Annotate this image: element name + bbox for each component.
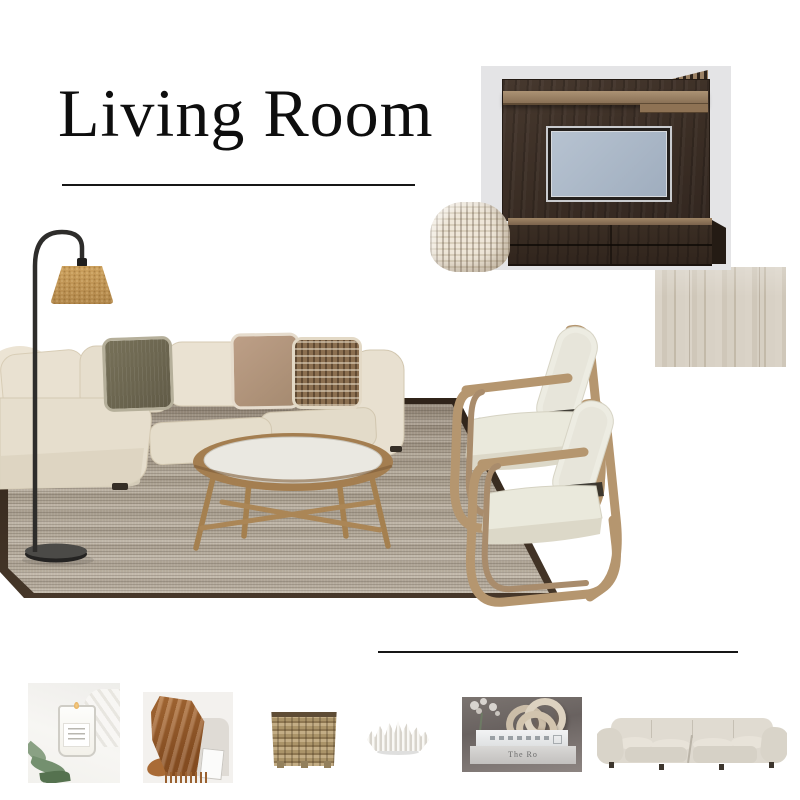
tv-base-top-strip — [508, 218, 712, 225]
basket-foot — [301, 761, 308, 768]
flower — [480, 698, 487, 705]
thumbnail-coral-bowl[interactable] — [367, 719, 429, 755]
mini-sofa-seat — [693, 746, 757, 763]
page-title[interactable]: Living Room — [58, 76, 434, 151]
candle-jar — [58, 705, 96, 757]
book-top — [476, 730, 568, 746]
mood-board: Living Room — [0, 0, 800, 800]
woven-pouf[interactable] — [430, 202, 510, 272]
coral-sculpture — [367, 719, 429, 751]
tv-shelf — [503, 91, 708, 105]
book-bottom: The Ro — [470, 746, 576, 764]
book-spine-text-bars — [490, 736, 554, 740]
thumbnail-corner-sofa[interactable] — [597, 713, 787, 771]
flower-stem — [479, 713, 483, 731]
candle-label — [63, 723, 90, 747]
tv-shelf-bracket — [640, 104, 708, 113]
cushion-taupe[interactable] — [230, 332, 300, 409]
candle-flame — [74, 702, 79, 709]
flooring-swatch[interactable] — [655, 267, 786, 367]
candle-label-text-bars — [68, 728, 85, 741]
tv-screen — [548, 128, 670, 200]
mini-sofa-foot — [719, 764, 724, 770]
mini-sofa-seat — [625, 747, 687, 762]
cushion-woven[interactable] — [292, 337, 362, 409]
lamp-shade-texture — [51, 266, 113, 304]
thumbnail-wicker-basket[interactable] — [270, 712, 338, 768]
mini-sofa-foot — [609, 762, 614, 768]
mini-sofa-foot — [769, 762, 774, 768]
arc-floor-lamp[interactable] — [18, 222, 124, 570]
mini-sofa-arm — [759, 726, 787, 765]
thumbnail-candle[interactable] — [28, 683, 120, 783]
blanket-fringe — [165, 772, 209, 783]
tv-unit[interactable] — [481, 66, 731, 270]
coffee-table[interactable] — [188, 430, 400, 556]
thumbnail-books-decor[interactable]: The Ro — [462, 697, 582, 772]
mini-sofa-seam — [651, 720, 652, 738]
basket-body — [270, 712, 338, 766]
title-underline[interactable] — [62, 184, 415, 186]
flower — [495, 711, 500, 716]
basket-foot — [277, 761, 284, 768]
accent-armchairs[interactable] — [440, 318, 640, 610]
bottom-divider-line[interactable] — [378, 651, 738, 653]
basket-foot — [324, 761, 331, 768]
mini-sofa-foot — [659, 764, 664, 770]
book-spine-logo — [553, 735, 562, 744]
tv-base-cabinet — [508, 218, 712, 266]
tv-drawer-gap — [508, 244, 712, 246]
table-stretchers — [202, 502, 380, 530]
mini-sofa-seam — [733, 720, 734, 738]
lamp-socket — [77, 258, 87, 267]
tv-base-end-cap — [712, 220, 726, 264]
flower — [489, 703, 497, 711]
thumbnail-throw-blanket[interactable] — [143, 692, 233, 783]
